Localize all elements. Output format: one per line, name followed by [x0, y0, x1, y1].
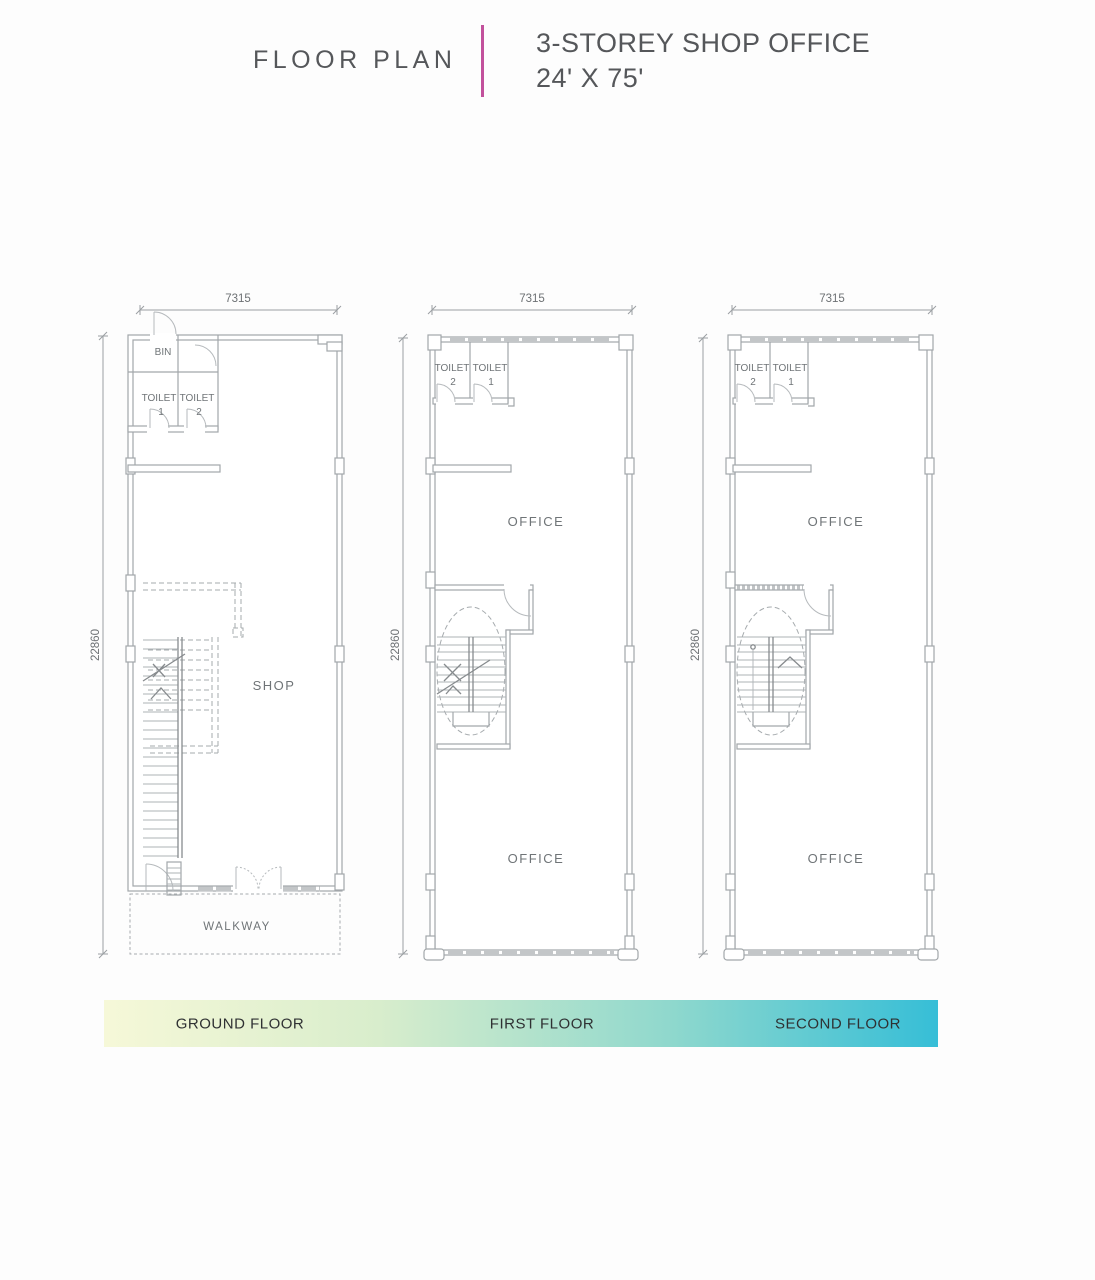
first-width-dim: 7315: [519, 293, 545, 305]
ground-width-dim: 7315: [225, 293, 251, 305]
room-num-toilet1: 1: [788, 377, 794, 388]
room-label-toilet2: TOILET: [735, 363, 770, 374]
room-num-toilet1: 1: [488, 377, 494, 388]
floor-legend-bar: GROUND FLOOR FIRST FLOOR SECOND FLOOR: [104, 1000, 938, 1047]
first-bottom-facade: [424, 949, 638, 960]
room-label-office-top: OFFICE: [508, 514, 565, 529]
room-num-toilet2: 2: [750, 377, 756, 388]
room-label-toilet1: TOILET: [773, 363, 808, 374]
legend-ground-floor: GROUND FLOOR: [176, 1015, 305, 1032]
ground-walkway: WALKWAY: [130, 894, 340, 954]
legend-second-floor: SECOND FLOOR: [775, 1015, 901, 1032]
subtitle-line1: 3-STOREY SHOP OFFICE: [536, 26, 870, 61]
ground-depth-dim: 22860: [90, 629, 102, 661]
room-label-toilet2: TOILET: [180, 393, 215, 404]
second-bottom-facade: [724, 949, 938, 960]
title-divider: [481, 25, 484, 97]
subtitle: 3-STOREY SHOP OFFICE 24' X 75': [536, 26, 870, 96]
first-floor-plan: 7315 22860 TOI: [375, 280, 690, 970]
room-label-office-bottom: OFFICE: [508, 851, 565, 866]
floor-plan-page: FLOOR PLAN 3-STOREY SHOP OFFICE 24' X 75…: [0, 0, 1095, 1280]
room-num-toilet1: 1: [158, 407, 164, 418]
first-depth-dim: 22860: [390, 629, 402, 661]
room-label-office-top: OFFICE: [808, 514, 865, 529]
second-depth-dim: 22860: [690, 629, 702, 661]
ground-stub-wall: [128, 465, 220, 472]
room-label-walkway: WALKWAY: [203, 921, 271, 933]
legend-first-floor: FIRST FLOOR: [490, 1015, 594, 1032]
room-label-bin: BIN: [155, 347, 172, 358]
ground-walls: [126, 335, 344, 891]
second-floor-plan: 7315 22860 TOI: [675, 280, 995, 970]
room-label-shop: SHOP: [253, 678, 296, 693]
second-width-dim: 7315: [819, 293, 845, 305]
second-stub-wall: [733, 465, 811, 472]
room-label-toilet1: TOILET: [142, 393, 177, 404]
room-label-toilet1: TOILET: [473, 363, 508, 374]
room-num-toilet2: 2: [196, 407, 202, 418]
first-stub-wall: [433, 465, 511, 472]
page-title: FLOOR PLAN: [253, 46, 456, 75]
ground-floor-plan: 7315 22860: [70, 280, 380, 970]
subtitle-line2: 24' X 75': [536, 61, 870, 96]
room-label-toilet2: TOILET: [435, 363, 470, 374]
room-num-toilet2: 2: [450, 377, 456, 388]
room-label-office-bottom: OFFICE: [808, 851, 865, 866]
